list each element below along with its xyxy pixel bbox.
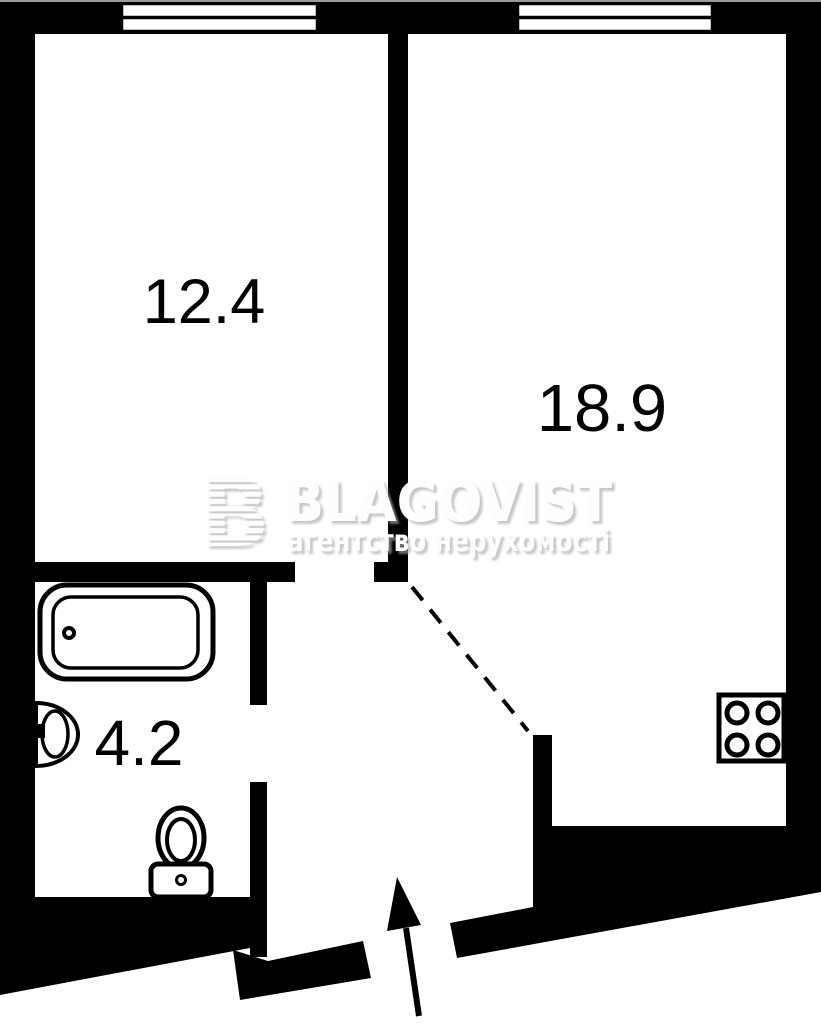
right-wall bbox=[786, 2, 821, 892]
toilet-button bbox=[177, 876, 186, 885]
sink-faucet bbox=[31, 724, 45, 738]
stove-burner bbox=[727, 703, 747, 723]
room-area-label-living: 12.4 bbox=[143, 267, 266, 337]
toilet-bowl-inner bbox=[167, 819, 195, 861]
floor-plan-canvas: 12.4 18.9 4.2 B BLAGOVIST агентство неру… bbox=[0, 0, 821, 1024]
bathtub-icon bbox=[40, 585, 213, 679]
bathroom-right-wall-lower bbox=[250, 782, 267, 957]
watermark: B BLAGOVIST агентство нерухомості bbox=[198, 459, 612, 569]
partition-wall-foot bbox=[374, 562, 408, 582]
room-area-label-main: 18.9 bbox=[537, 371, 667, 446]
sink-bowl bbox=[42, 711, 68, 757]
window-2 bbox=[518, 4, 712, 31]
bathroom-right-wall-upper bbox=[250, 578, 267, 705]
bathtub-drain bbox=[64, 628, 74, 638]
stove-burner bbox=[758, 735, 778, 755]
stove-burner bbox=[758, 703, 778, 723]
floor-plan: 12.4 18.9 4.2 B BLAGOVIST агентство неру… bbox=[0, 0, 821, 1024]
top-border-line bbox=[0, 0, 821, 2]
stove-burner bbox=[727, 735, 747, 755]
toilet-icon bbox=[151, 808, 211, 897]
stove-icon bbox=[719, 695, 784, 761]
watermark-tagline-text: агентство нерухомості bbox=[287, 524, 610, 559]
room-area-label-bathroom: 4.2 bbox=[95, 707, 184, 779]
left-wall bbox=[0, 2, 35, 900]
window-1 bbox=[122, 4, 317, 31]
watermark-logo-b-icon: B bbox=[198, 459, 270, 569]
